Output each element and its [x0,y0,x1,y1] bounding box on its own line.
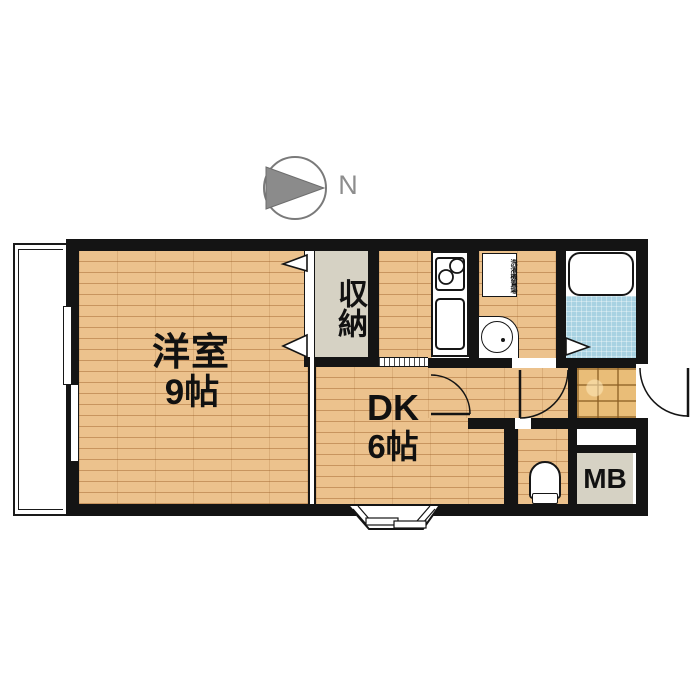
closet-door-chevrons [283,255,307,357]
dk-size: 6帖 [343,430,443,468]
western-room-size: 9帖 [142,375,242,415]
western-room-name: 洋室 [141,334,241,376]
bathroom-door-chevron [566,338,589,355]
closet-label: 収納 [327,262,365,354]
stove-burners [439,259,464,284]
front-door [640,368,688,417]
bay-window [348,505,440,529]
floorplan-canvas: N [0,0,700,700]
washroom-door [520,370,568,418]
washer-space-label: 洗濯機置場 [482,256,517,296]
meter-box-label: MB [577,464,633,494]
compass-north-label: N [333,171,363,205]
dk-name: DK [343,389,443,429]
